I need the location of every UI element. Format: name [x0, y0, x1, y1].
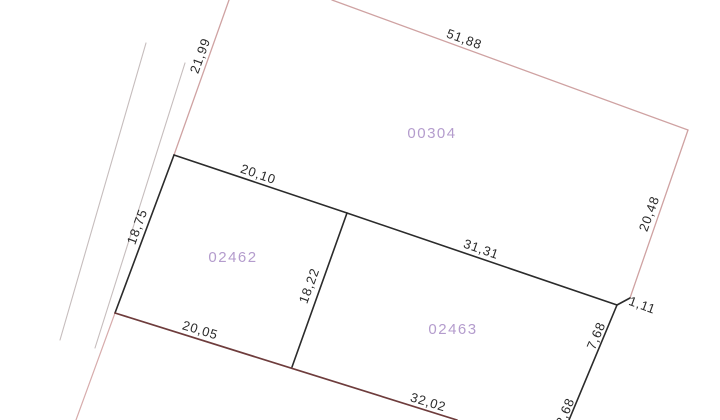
bottom-boundary-line: [115, 313, 457, 420]
cadastral-map: 21,99 51,88 20,10 18,75 18,22 31,31 20,4…: [0, 0, 720, 420]
road-edge-gray-inner-line: [95, 63, 185, 348]
dimension-label-1-11: 1,11: [627, 293, 658, 317]
parcel-label-02462: 02462: [208, 249, 257, 266]
dimension-label-18-75: 18,75: [124, 207, 151, 246]
dimension-label-20-05: 20,05: [181, 317, 220, 342]
parcel-label-02463: 02463: [428, 321, 477, 338]
dimension-label-20-48: 20,48: [636, 194, 663, 233]
cadastral-map-canvas: 21,99 51,88 20,10 18,75 18,22 31,31 20,4…: [0, 0, 720, 420]
boundary-line-21-99: [174, 0, 229, 155]
parcel-top-boundary-line: [174, 155, 617, 305]
road-edge-gray-outer-line: [60, 43, 146, 340]
parcel-02462-left-edge: [115, 155, 174, 313]
boundary-line-51-88: [332, 0, 688, 130]
dimension-label-18-22: 18,22: [296, 266, 323, 305]
boundary-line-20-48: [630, 130, 688, 298]
parcel-label-00304: 00304: [407, 125, 456, 142]
road-edge-pink-lower-line: [76, 313, 115, 420]
dimension-label-2-68: 2,68: [553, 396, 578, 420]
